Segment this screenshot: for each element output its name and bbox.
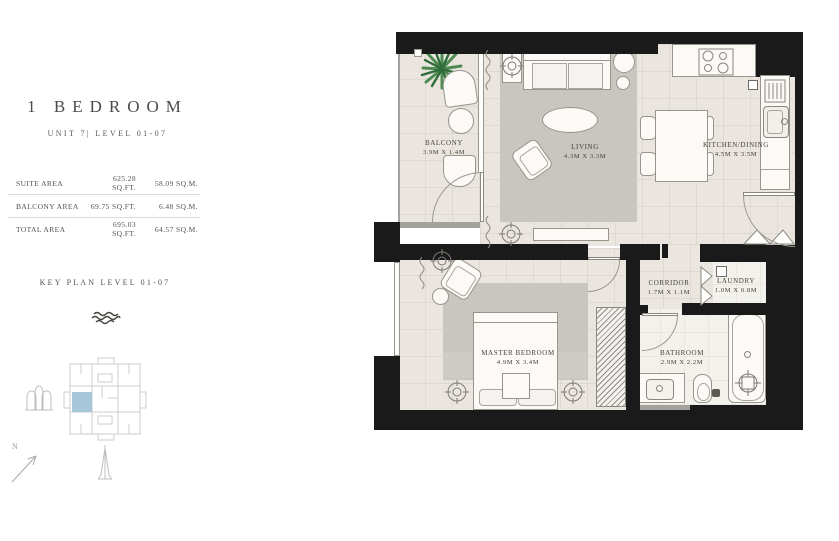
- floor-drain: [712, 389, 720, 397]
- curtain-icon: [418, 257, 427, 291]
- wave-icon: [90, 310, 122, 326]
- area-sqm: 64.57 SQ.M.: [136, 225, 200, 234]
- area-sqft: 625.28 SQ.FT.: [90, 174, 136, 192]
- area-sqft: 695.03 SQ.FT.: [90, 220, 136, 238]
- ceiling-light-icon: [430, 249, 454, 273]
- hob-icon: [698, 48, 734, 76]
- wall: [374, 244, 588, 260]
- floorplan-sheet: { "panel": { "title": "1 BEDROOM", "subt…: [0, 0, 839, 541]
- tv-console: [533, 228, 609, 241]
- master-bedroom-label: MASTER BEDROOM 4.9M X 3.4M: [478, 348, 558, 368]
- wall: [374, 356, 400, 414]
- area-label: BALCONY AREA: [8, 202, 90, 211]
- kitchen-sink: [763, 106, 789, 138]
- balcony-door-leaf: [480, 172, 484, 222]
- wall-marker: [748, 80, 758, 90]
- area-sqft: 69.75 SQ.FT.: [90, 202, 136, 211]
- nightstand: [443, 352, 472, 378]
- area-table: SUITE AREA 625.28 SQ.FT. 58.09 SQ.M. BAL…: [8, 172, 200, 240]
- keyplan-title: KEY PLAN LEVEL 01-07: [10, 278, 200, 287]
- curtain-icon: [484, 50, 493, 92]
- spire-tower-icon: [94, 444, 116, 482]
- bathroom-label: BATHROOM 2.9M X 2.2M: [642, 348, 722, 368]
- table-row: TOTAL AREA 695.03 SQ.FT. 64.57 SQ.M.: [8, 217, 200, 240]
- bath-threshold: [640, 405, 690, 410]
- wall: [396, 32, 658, 54]
- balcony-label: BALCONY 3.9M X 1.4M: [404, 138, 484, 158]
- ceiling-light-icon: [561, 380, 585, 404]
- bed-bench: [502, 373, 530, 399]
- wall: [700, 244, 766, 262]
- side-table: [432, 288, 449, 305]
- floor-plan: BALCONY 3.9M X 1.4M LIVING 4.3M X 3.3M K…: [370, 30, 805, 432]
- wall: [766, 245, 803, 430]
- arch-building-icon: [24, 382, 54, 412]
- laundry-label: LAUNDRY 1.0M X 0.8M: [702, 276, 770, 296]
- key-plan: [58, 352, 152, 446]
- shower-head-icon: [735, 370, 761, 396]
- balcony-railing: [398, 222, 480, 228]
- page-title: 1 BEDROOM: [15, 97, 200, 117]
- balcony-railing: [398, 52, 400, 228]
- wall: [662, 244, 668, 258]
- highlighted-unit: [72, 392, 92, 412]
- toilet: [693, 374, 712, 403]
- coffee-table: [542, 107, 598, 133]
- curtain-icon: [484, 216, 493, 252]
- unit-level-subtitle: UNIT 7| LEVEL 01-07: [15, 129, 200, 138]
- wall: [682, 303, 766, 315]
- area-sqm: 6.48 SQ.M.: [136, 202, 200, 211]
- dish-drainer-icon: [764, 79, 786, 103]
- ceiling-light-icon: [499, 222, 523, 246]
- kitchen-dining-label: KITCHEN/DINING 4.5M X 3.5M: [696, 140, 776, 160]
- area-label: SUITE AREA: [8, 179, 90, 188]
- wall: [374, 410, 644, 430]
- area-sqm: 58.09 SQ.M.: [136, 179, 200, 188]
- bedroom-door-leaf: [588, 257, 620, 260]
- vanity-sink: [637, 373, 685, 403]
- entry-door-leaf: [743, 192, 795, 196]
- balcony-round-table: [448, 108, 474, 134]
- pouf: [613, 51, 635, 73]
- living-label: LIVING 4.3M X 3.3M: [545, 142, 625, 162]
- wall-marker: [414, 49, 422, 57]
- table-row: SUITE AREA 625.28 SQ.FT. 58.09 SQ.M.: [8, 172, 200, 194]
- area-label: TOTAL AREA: [8, 225, 90, 234]
- ceiling-light-icon: [445, 380, 469, 404]
- wall: [755, 42, 803, 77]
- bedroom-window: [394, 262, 400, 356]
- pouf-small: [616, 76, 630, 90]
- ceiling-light-icon: [500, 54, 524, 78]
- nightstand: [558, 352, 587, 378]
- corridor-label: CORRIDOR 1.7M X 1.1M: [629, 278, 709, 298]
- table-row: BALCONY AREA 69.75 SQ.FT. 6.48 SQ.M.: [8, 194, 200, 217]
- north-arrow-icon: [8, 450, 44, 484]
- sofa: [523, 48, 611, 90]
- bathroom-door-leaf: [642, 313, 678, 316]
- wall: [795, 75, 803, 245]
- wardrobe: [596, 307, 626, 407]
